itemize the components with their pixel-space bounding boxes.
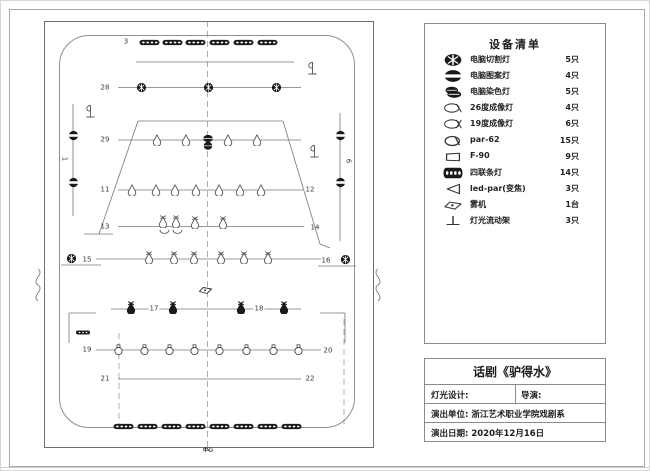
equipment-row: par-6215只	[425, 134, 605, 148]
profile-can-fixture	[169, 251, 179, 264]
strip-light-fixture	[209, 39, 230, 46]
equipment-name: 26度成像灯	[470, 102, 513, 113]
moving-cut-light-fixture	[203, 82, 214, 93]
pipe-label-28: 28	[101, 85, 110, 92]
flag-stand-fixture	[306, 143, 320, 160]
show-title: 话剧《驴得水》	[425, 359, 605, 385]
pipe-label-16: 16	[322, 258, 331, 265]
lighting-design-label: 灯光设计:	[431, 389, 468, 401]
equipment-count: 1台	[565, 199, 579, 210]
strip-light-fixture	[233, 39, 254, 46]
strip-light-fixture	[139, 39, 160, 46]
pipe-label-15: 15	[83, 257, 92, 264]
f90-can-fixture	[140, 344, 149, 356]
wash-can-fixture	[168, 301, 178, 314]
sheet-bottom-edge	[1, 467, 650, 468]
moving-pattern-light-fixture	[68, 177, 79, 188]
equipment-row: 灯光流动架3只	[425, 214, 605, 228]
pipe-label-6: 6	[345, 159, 352, 163]
equipment-name: 电脑切割灯	[470, 54, 510, 65]
par-can-fixture	[191, 184, 201, 196]
performance-unit-row: 演出单位: 浙江艺术职业学院戏剧系	[425, 404, 605, 423]
pipe-label-17: 17	[149, 306, 160, 313]
moving-cut-light-fixture	[271, 82, 282, 93]
pipe-label-22: 22	[306, 376, 315, 383]
pipe-label-11: 11	[101, 187, 110, 194]
moving-cut-light-fixture	[340, 254, 351, 265]
wash-can-fixture	[126, 301, 136, 314]
moving-cut-light-fixture	[136, 82, 147, 93]
par-can-fixture	[181, 134, 191, 146]
equipment-name: 雾机	[470, 199, 486, 210]
par-can-fixture	[151, 184, 161, 196]
pipe-label-21: 21	[101, 376, 110, 383]
f90-icon	[443, 150, 463, 164]
equipment-count: 5只	[565, 86, 579, 97]
centerline-label: 中心	[203, 449, 213, 454]
equipment-row: 电脑切割灯5只	[425, 53, 605, 67]
equipment-row: 雾机1台	[425, 198, 605, 212]
moving-cut-light-fixture	[66, 253, 77, 264]
pipe-label-1: 1	[61, 157, 68, 161]
fog-machine-fixture	[198, 284, 213, 296]
title-block: 话剧《驴得水》 灯光设计: 导演: 演出单位: 浙江艺术职业学院戏剧系 演出日期…	[424, 358, 606, 442]
pipe-label-18: 18	[254, 306, 265, 313]
equipment-row: 四联条灯14只	[425, 166, 605, 180]
equipment-row: 电脑染色灯5只	[425, 85, 605, 99]
performance-unit-text: 演出单位: 浙江艺术职业学院戏剧系	[431, 408, 565, 420]
strip-light-fixture	[233, 423, 254, 430]
profile-can-fixture	[239, 251, 249, 264]
equipment-name: 四联条灯	[470, 167, 502, 178]
profile-26-icon	[443, 101, 463, 115]
equipment-row: 电脑图案灯4只	[425, 69, 605, 83]
strip-light-fixture	[185, 423, 206, 430]
equipment-name: 电脑图案灯	[470, 70, 510, 81]
profile-19-icon	[443, 117, 463, 131]
equipment-count: 5只	[565, 54, 579, 65]
moving-wash-light-icon	[443, 85, 463, 99]
equipment-count: 6只	[565, 118, 579, 129]
light-stand-icon	[443, 214, 463, 228]
strip-light-fixture	[257, 423, 278, 430]
clamp-mark-fixture	[172, 229, 183, 235]
flag-stand-fixture	[304, 60, 318, 77]
equipment-count: 9只	[565, 151, 579, 162]
f90-can-fixture	[215, 344, 224, 356]
performance-date-text: 演出日期: 2020年12月16日	[431, 427, 544, 439]
profile-can-fixture	[218, 216, 228, 229]
f90-can-fixture	[165, 344, 174, 356]
moving-pattern-light-fixture	[335, 130, 346, 141]
equipment-count: 4只	[565, 102, 579, 113]
par-can-fixture	[252, 134, 262, 146]
equipment-list-title: 设备清单	[425, 36, 605, 52]
f90-can-fixture	[242, 344, 251, 356]
strip-light-fixture	[113, 423, 134, 430]
strip-light-fixture	[209, 423, 230, 430]
par-can-fixture	[223, 134, 233, 146]
equipment-count: 3只	[565, 183, 579, 194]
profile-can-fixture	[190, 216, 200, 229]
equipment-count: 15只	[560, 135, 579, 146]
pipe-label-12: 12	[306, 187, 315, 194]
profile-can-fixture	[189, 251, 199, 264]
par-can-fixture	[214, 184, 224, 196]
f90-can-fixture	[114, 344, 123, 356]
par-can-fixture	[152, 134, 162, 146]
par-can-fixture	[170, 184, 180, 196]
light-cluster-fixture	[202, 134, 214, 151]
strip-light-fixture	[281, 423, 302, 430]
par62-icon	[443, 134, 463, 148]
pipe-label-14: 14	[311, 225, 320, 232]
performance-date-row: 演出日期: 2020年12月16日	[425, 423, 605, 442]
equipment-name: 灯光流动架	[470, 215, 510, 226]
equipment-name: par-62	[470, 135, 500, 144]
equipment-name: F-90	[470, 151, 490, 160]
f90-can-fixture	[294, 344, 303, 356]
equipment-name: 19度成像灯	[470, 118, 513, 129]
profile-can-fixture	[158, 215, 168, 228]
equipment-name: led-par(变焦)	[470, 183, 526, 194]
fog-machine-icon	[443, 198, 463, 212]
profile-can-fixture	[144, 251, 154, 264]
lighting-plot-sheet: 3282916111213141516171819202122中心 设备清单 电…	[0, 0, 650, 471]
mini-strip-fixture	[76, 330, 90, 335]
pipe-label-13: 13	[101, 224, 110, 231]
strip-light-fixture	[162, 39, 183, 46]
f90-can-fixture	[190, 344, 199, 356]
par-can-fixture	[127, 184, 137, 196]
equipment-row: led-par(变焦)3只	[425, 182, 605, 196]
equipment-count: 4只	[565, 70, 579, 81]
profile-can-fixture	[171, 215, 181, 228]
par-can-fixture	[235, 184, 245, 196]
equipment-count: 14只	[560, 167, 579, 178]
moving-cut-light-icon	[443, 53, 463, 67]
director-label: 导演:	[521, 389, 541, 401]
equipment-name: 电脑染色灯	[470, 86, 510, 97]
flag-stand-fixture	[82, 103, 96, 120]
led-par-icon	[443, 182, 463, 196]
pipe-label-20: 20	[324, 348, 333, 355]
profile-can-fixture	[263, 251, 273, 264]
moving-pattern-light-fixture	[68, 130, 79, 141]
equipment-count: 3只	[565, 215, 579, 226]
title-block-divider	[515, 385, 516, 403]
stage-outline	[59, 35, 355, 428]
pipe-label-19: 19	[83, 347, 92, 354]
clamp-mark-fixture	[159, 229, 170, 235]
strip-light-fixture	[161, 423, 182, 430]
equipment-row: F-909只	[425, 150, 605, 164]
equipment-row: 19度成像灯6只	[425, 117, 605, 131]
par-can-fixture	[256, 184, 266, 196]
wash-can-fixture	[279, 301, 289, 314]
equipment-list-panel: 设备清单 电脑切割灯5只电脑图案灯4只电脑染色灯5只26度成像灯4只19度成像灯…	[424, 23, 606, 344]
strip-light-fixture	[257, 39, 278, 46]
pipe-label-3: 3	[124, 39, 128, 46]
moving-pattern-light-fixture	[335, 177, 346, 188]
profile-can-fixture	[216, 251, 226, 264]
f90-can-fixture	[269, 344, 278, 356]
strip-light-fixture	[185, 39, 206, 46]
strip-light-fixture	[137, 423, 158, 430]
strip-light-icon	[443, 166, 463, 180]
pipe-label-29: 29	[101, 137, 110, 144]
designer-director-row: 灯光设计: 导演:	[425, 385, 605, 404]
equipment-row: 26度成像灯4只	[425, 101, 605, 115]
moving-pattern-light-icon	[443, 69, 463, 83]
wash-can-fixture	[236, 301, 246, 314]
